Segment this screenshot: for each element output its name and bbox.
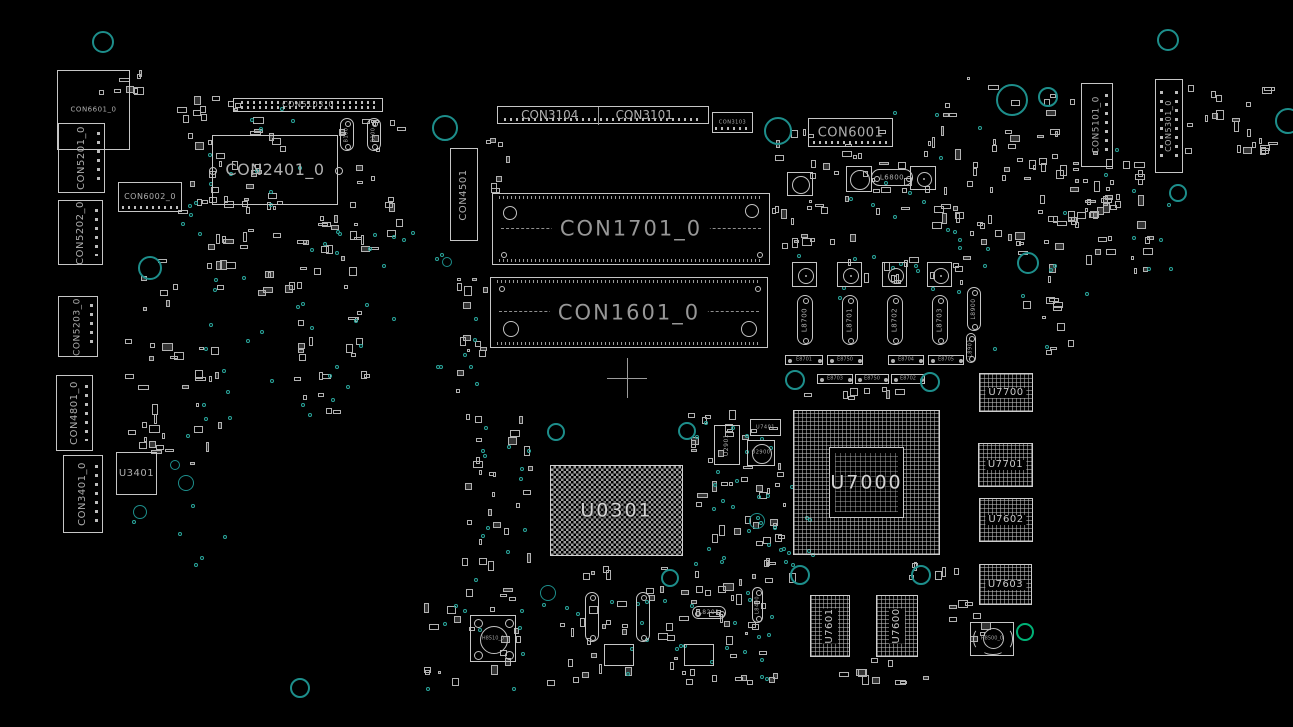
via-dot [733, 621, 737, 625]
via-dot [1021, 294, 1025, 298]
small-component [696, 586, 704, 592]
pad-dot [848, 378, 852, 382]
small-component [516, 636, 522, 642]
mount-arc [982, 645, 1004, 655]
component-E8701: E8701 [785, 355, 823, 365]
component-CON5101_0: CON5101_0 [1081, 83, 1113, 167]
small-component [942, 213, 947, 224]
small-component [493, 522, 502, 529]
small-component [137, 74, 141, 78]
small-component [1187, 123, 1193, 127]
small-component [696, 502, 702, 507]
fiducial-circle [764, 117, 792, 145]
small-component [1134, 268, 1137, 274]
small-component [504, 528, 509, 535]
component-CON5301_0: CON5301_0 [1155, 79, 1183, 173]
label-U7700: U7700 [985, 388, 1026, 398]
small-component [177, 107, 187, 112]
via-dot [463, 609, 467, 613]
component-L8400: L8400 [752, 587, 763, 623]
small-component [1116, 194, 1120, 200]
small-component [1123, 161, 1130, 169]
small-component [781, 209, 787, 219]
small-component [697, 493, 707, 498]
component-cap [636, 592, 650, 642]
via-dot [474, 317, 478, 321]
via-dot [200, 556, 204, 560]
component-coil [927, 262, 952, 287]
small-component [527, 553, 531, 563]
via-dot [782, 547, 786, 551]
small-component [949, 605, 956, 609]
small-component [560, 623, 565, 627]
component-H8510_0: H8510_0 [470, 615, 516, 662]
small-component [599, 664, 602, 675]
small-component [1060, 165, 1068, 176]
small-component [573, 677, 580, 682]
small-component [173, 284, 178, 290]
via-dot [483, 454, 487, 458]
label-E8701: E8701 [796, 358, 812, 363]
pin-column [90, 304, 93, 349]
via-dot [486, 526, 490, 530]
small-component [1246, 102, 1251, 107]
small-component [454, 616, 461, 623]
via-dot [872, 255, 876, 259]
small-component [190, 181, 194, 187]
via-dot [871, 203, 875, 207]
via-dot [675, 647, 679, 651]
label-H8510_0: H8510_0 [482, 636, 504, 641]
pin-strip [497, 280, 762, 283]
pad-dot [923, 178, 925, 180]
pin-column [95, 465, 98, 523]
small-component [326, 408, 333, 414]
small-component [1029, 160, 1036, 169]
small-component [273, 206, 277, 210]
component-chip [684, 644, 714, 666]
small-component [686, 679, 693, 685]
small-component [322, 222, 330, 227]
via-dot [931, 287, 935, 291]
small-component [248, 229, 253, 232]
via-dot [1115, 148, 1119, 152]
component-coil [882, 262, 907, 287]
component-coil [910, 166, 936, 190]
pin-row [715, 127, 750, 130]
label-U7601: U7601 [822, 608, 838, 643]
small-component [873, 189, 880, 193]
via-dot [270, 379, 274, 383]
small-component [216, 234, 220, 243]
label-U2900: U2900 [752, 451, 771, 456]
small-component [988, 85, 999, 90]
label-CON6601_0: CON6601_0 [71, 107, 117, 114]
via-dot [481, 449, 485, 453]
small-component [724, 621, 730, 628]
pad-ring [848, 298, 854, 304]
small-component [712, 675, 717, 682]
small-component [778, 463, 781, 471]
via-dot [209, 323, 213, 327]
pad-dot [858, 378, 862, 382]
small-component [1008, 144, 1016, 148]
small-component [300, 267, 307, 270]
via-dot [849, 197, 853, 201]
small-component [472, 278, 477, 281]
label-CON3103: CON3103 [719, 120, 746, 125]
small-component [777, 472, 784, 477]
component-U7603: U7603 [979, 564, 1032, 605]
small-component [1083, 179, 1088, 183]
pin-column [97, 132, 100, 184]
component-CON5203_0: CON5203_0 [58, 296, 98, 357]
via-dot [481, 534, 485, 538]
pad-dot [830, 359, 834, 363]
small-component [617, 601, 626, 607]
small-component [483, 287, 488, 294]
small-component [162, 433, 165, 439]
fiducial-circle [1169, 184, 1187, 202]
small-component [1094, 181, 1100, 192]
fiducial-circle [1275, 108, 1293, 134]
via-dot [767, 633, 771, 637]
label-U7603: U7603 [985, 580, 1026, 590]
small-component [425, 670, 430, 675]
small-component [719, 525, 725, 536]
component-U7602: U7602 [979, 498, 1033, 542]
component-L8703: L8703 [932, 295, 948, 345]
small-component [932, 222, 942, 229]
small-component [965, 602, 973, 607]
small-component [708, 458, 713, 463]
pad-ring [972, 324, 978, 330]
small-component [207, 263, 212, 269]
via-dot [475, 382, 479, 386]
small-component [767, 562, 775, 565]
fiducial-circle [790, 565, 810, 585]
small-component [752, 574, 756, 579]
via-dot [679, 644, 683, 648]
via-dot [731, 505, 735, 509]
via-dot [958, 238, 962, 242]
small-component [1106, 187, 1110, 191]
small-component [509, 597, 516, 600]
pad-dot [788, 359, 792, 363]
via-dot [983, 264, 987, 268]
via-dot [663, 599, 667, 603]
pad-ring [972, 290, 978, 296]
small-component [1247, 129, 1251, 137]
small-component [314, 268, 320, 276]
small-component [1185, 148, 1192, 155]
small-component [1057, 323, 1066, 331]
small-component [479, 539, 482, 545]
component-chip [604, 644, 634, 666]
via-dot [204, 347, 208, 351]
label-U3401: U3401 [119, 469, 154, 479]
small-component [681, 590, 688, 595]
small-component [775, 155, 785, 160]
fiducial-circle [442, 257, 452, 267]
fiducial-circle [92, 31, 114, 53]
small-component [464, 286, 472, 296]
small-component [500, 594, 508, 597]
small-component [782, 243, 788, 249]
via-dot [189, 213, 193, 217]
small-component [208, 244, 215, 250]
small-component [349, 267, 357, 276]
via-dot [365, 303, 369, 307]
via-dot [202, 403, 206, 407]
via-dot [507, 445, 511, 449]
label-CON5101_0: CON5101_0 [1093, 96, 1102, 154]
pad-ring [741, 321, 757, 337]
small-component [1057, 221, 1067, 226]
component-U7401: U7401 [750, 419, 781, 436]
small-component [571, 628, 574, 637]
via-dot [523, 528, 527, 532]
via-dot [576, 612, 580, 616]
pad-ring [803, 338, 809, 344]
pcb-board-canvas: CON6601_0CON5201_0CON5202_0CON5203_0CON4… [0, 0, 1293, 727]
via-dot [1063, 211, 1067, 215]
via-dot [301, 302, 305, 306]
pin-row [122, 206, 178, 209]
pad-ring [756, 616, 762, 622]
small-component [1262, 87, 1272, 94]
small-component [721, 482, 729, 486]
via-dot [916, 269, 920, 273]
via-dot [1147, 267, 1151, 271]
small-component [183, 115, 189, 123]
small-component [438, 671, 442, 674]
via-dot [402, 238, 406, 242]
small-component [475, 416, 482, 422]
small-component [222, 236, 226, 244]
small-component [1143, 248, 1153, 255]
label-CON4501: CON4501 [459, 169, 469, 220]
small-component [273, 233, 281, 238]
small-component [752, 624, 759, 630]
small-component [350, 231, 356, 240]
via-dot [958, 246, 962, 250]
small-component [1038, 210, 1043, 213]
component-E8703: E8703 [817, 374, 853, 384]
small-component [1237, 145, 1241, 153]
small-component [1252, 142, 1256, 148]
small-component [190, 462, 195, 466]
small-component [125, 339, 132, 343]
small-component [334, 215, 339, 222]
small-component [1015, 232, 1026, 240]
small-component [842, 151, 852, 157]
small-component [981, 239, 987, 245]
via-dot [787, 551, 791, 555]
via-dot [747, 529, 751, 533]
small-component [466, 589, 472, 597]
small-component [718, 586, 726, 593]
via-dot [1053, 264, 1057, 268]
small-component [1260, 147, 1266, 155]
via-dot [626, 672, 630, 676]
small-component [670, 662, 673, 670]
via-dot [1132, 189, 1136, 193]
via-dot [512, 687, 516, 691]
small-component [953, 206, 958, 210]
small-component [479, 558, 487, 565]
small-component [1055, 131, 1058, 136]
small-component [456, 389, 460, 394]
via-dot [469, 365, 473, 369]
via-dot [335, 365, 339, 369]
label-U7602: U7602 [985, 515, 1026, 525]
small-component [622, 624, 628, 627]
via-dot [223, 535, 227, 539]
pad-ring [938, 338, 944, 344]
small-component [848, 396, 854, 400]
small-component [580, 618, 585, 627]
small-component [772, 208, 776, 215]
small-component [821, 207, 828, 215]
pad-ring [792, 176, 810, 194]
via-dot [1159, 238, 1163, 242]
small-component [1075, 179, 1079, 183]
via-dot [766, 494, 770, 498]
small-component [297, 240, 307, 244]
component-L6800: L6800 [871, 169, 913, 186]
label-E8750: E8750 [837, 358, 853, 363]
via-dot [720, 560, 724, 564]
small-component [333, 410, 341, 414]
small-component [361, 371, 367, 379]
small-component [1216, 110, 1223, 119]
label-L6800: L6800 [880, 174, 904, 181]
small-component [960, 280, 963, 285]
via-dot [181, 222, 185, 226]
small-component [218, 422, 222, 430]
small-component [858, 153, 861, 159]
small-component [476, 457, 480, 464]
small-component [872, 677, 880, 684]
via-dot [392, 235, 396, 239]
component-CON1701_0: CON1701_0 [492, 193, 770, 265]
via-dot [914, 264, 918, 268]
small-component [606, 570, 610, 580]
pin-strip [499, 196, 764, 199]
via-dot [770, 615, 774, 619]
via-dot [518, 626, 522, 630]
small-component [688, 413, 694, 418]
component-L8701: L8701 [842, 295, 858, 345]
component-B100: B100 [367, 118, 381, 151]
small-component [1040, 195, 1045, 203]
small-component [1134, 162, 1145, 168]
component-H8500_0: H8500_0 [970, 622, 1014, 656]
small-component [871, 658, 878, 663]
small-component [294, 377, 301, 381]
small-component [591, 653, 597, 658]
small-component [888, 660, 894, 667]
via-dot [331, 398, 335, 402]
small-component [767, 488, 770, 495]
small-component [467, 520, 472, 524]
via-dot [1132, 236, 1136, 240]
small-component [1039, 158, 1047, 165]
small-component [303, 395, 307, 401]
via-dot [308, 413, 312, 417]
small-component [285, 285, 293, 292]
via-dot [953, 230, 957, 234]
small-component [1008, 234, 1012, 242]
small-component [361, 235, 365, 245]
small-component [741, 675, 747, 681]
small-component [371, 176, 375, 181]
small-component [356, 165, 363, 172]
small-component [346, 344, 353, 353]
via-dot [957, 290, 961, 294]
fiducial-circle [290, 678, 310, 698]
component-U7601: U7601 [810, 595, 850, 657]
via-dot [765, 677, 769, 681]
small-component [149, 356, 154, 360]
small-component [1234, 121, 1239, 132]
small-component [211, 347, 219, 355]
small-component [682, 671, 686, 676]
small-component [856, 669, 866, 676]
via-dot [704, 421, 708, 425]
cross-v [627, 358, 628, 398]
small-component [385, 202, 393, 208]
via-dot [213, 288, 217, 292]
label-CON3101: CON3101 [616, 109, 673, 121]
small-component [679, 616, 690, 621]
component-CON2401_0: CON2401_0 [212, 135, 338, 205]
fiducial-circle [1157, 29, 1179, 51]
label-U2901: U2901 [724, 434, 730, 456]
label-B100: B100 [345, 127, 350, 142]
via-dot [838, 296, 842, 300]
component-circ [846, 166, 872, 192]
small-component [243, 232, 247, 242]
small-component [923, 676, 929, 680]
small-component [942, 567, 946, 577]
small-component [935, 571, 942, 581]
small-component [729, 482, 733, 486]
small-component [1205, 115, 1209, 122]
small-component [660, 586, 664, 594]
small-component [568, 659, 573, 667]
small-component [691, 449, 698, 452]
pin-column [1105, 94, 1108, 156]
small-component [263, 287, 274, 293]
small-component [160, 290, 168, 296]
small-component [170, 356, 178, 359]
small-component [1259, 138, 1262, 144]
via-dot [722, 556, 726, 560]
small-component [319, 372, 323, 380]
via-dot [440, 253, 444, 257]
via-dot [757, 495, 761, 499]
pin-row [813, 141, 888, 144]
via-dot [259, 127, 263, 131]
fiducial-circle [133, 505, 147, 519]
small-component [217, 285, 224, 291]
small-component [1044, 240, 1049, 244]
fiducial-circle [547, 423, 565, 441]
via-dot [842, 286, 846, 290]
via-dot [735, 479, 739, 483]
